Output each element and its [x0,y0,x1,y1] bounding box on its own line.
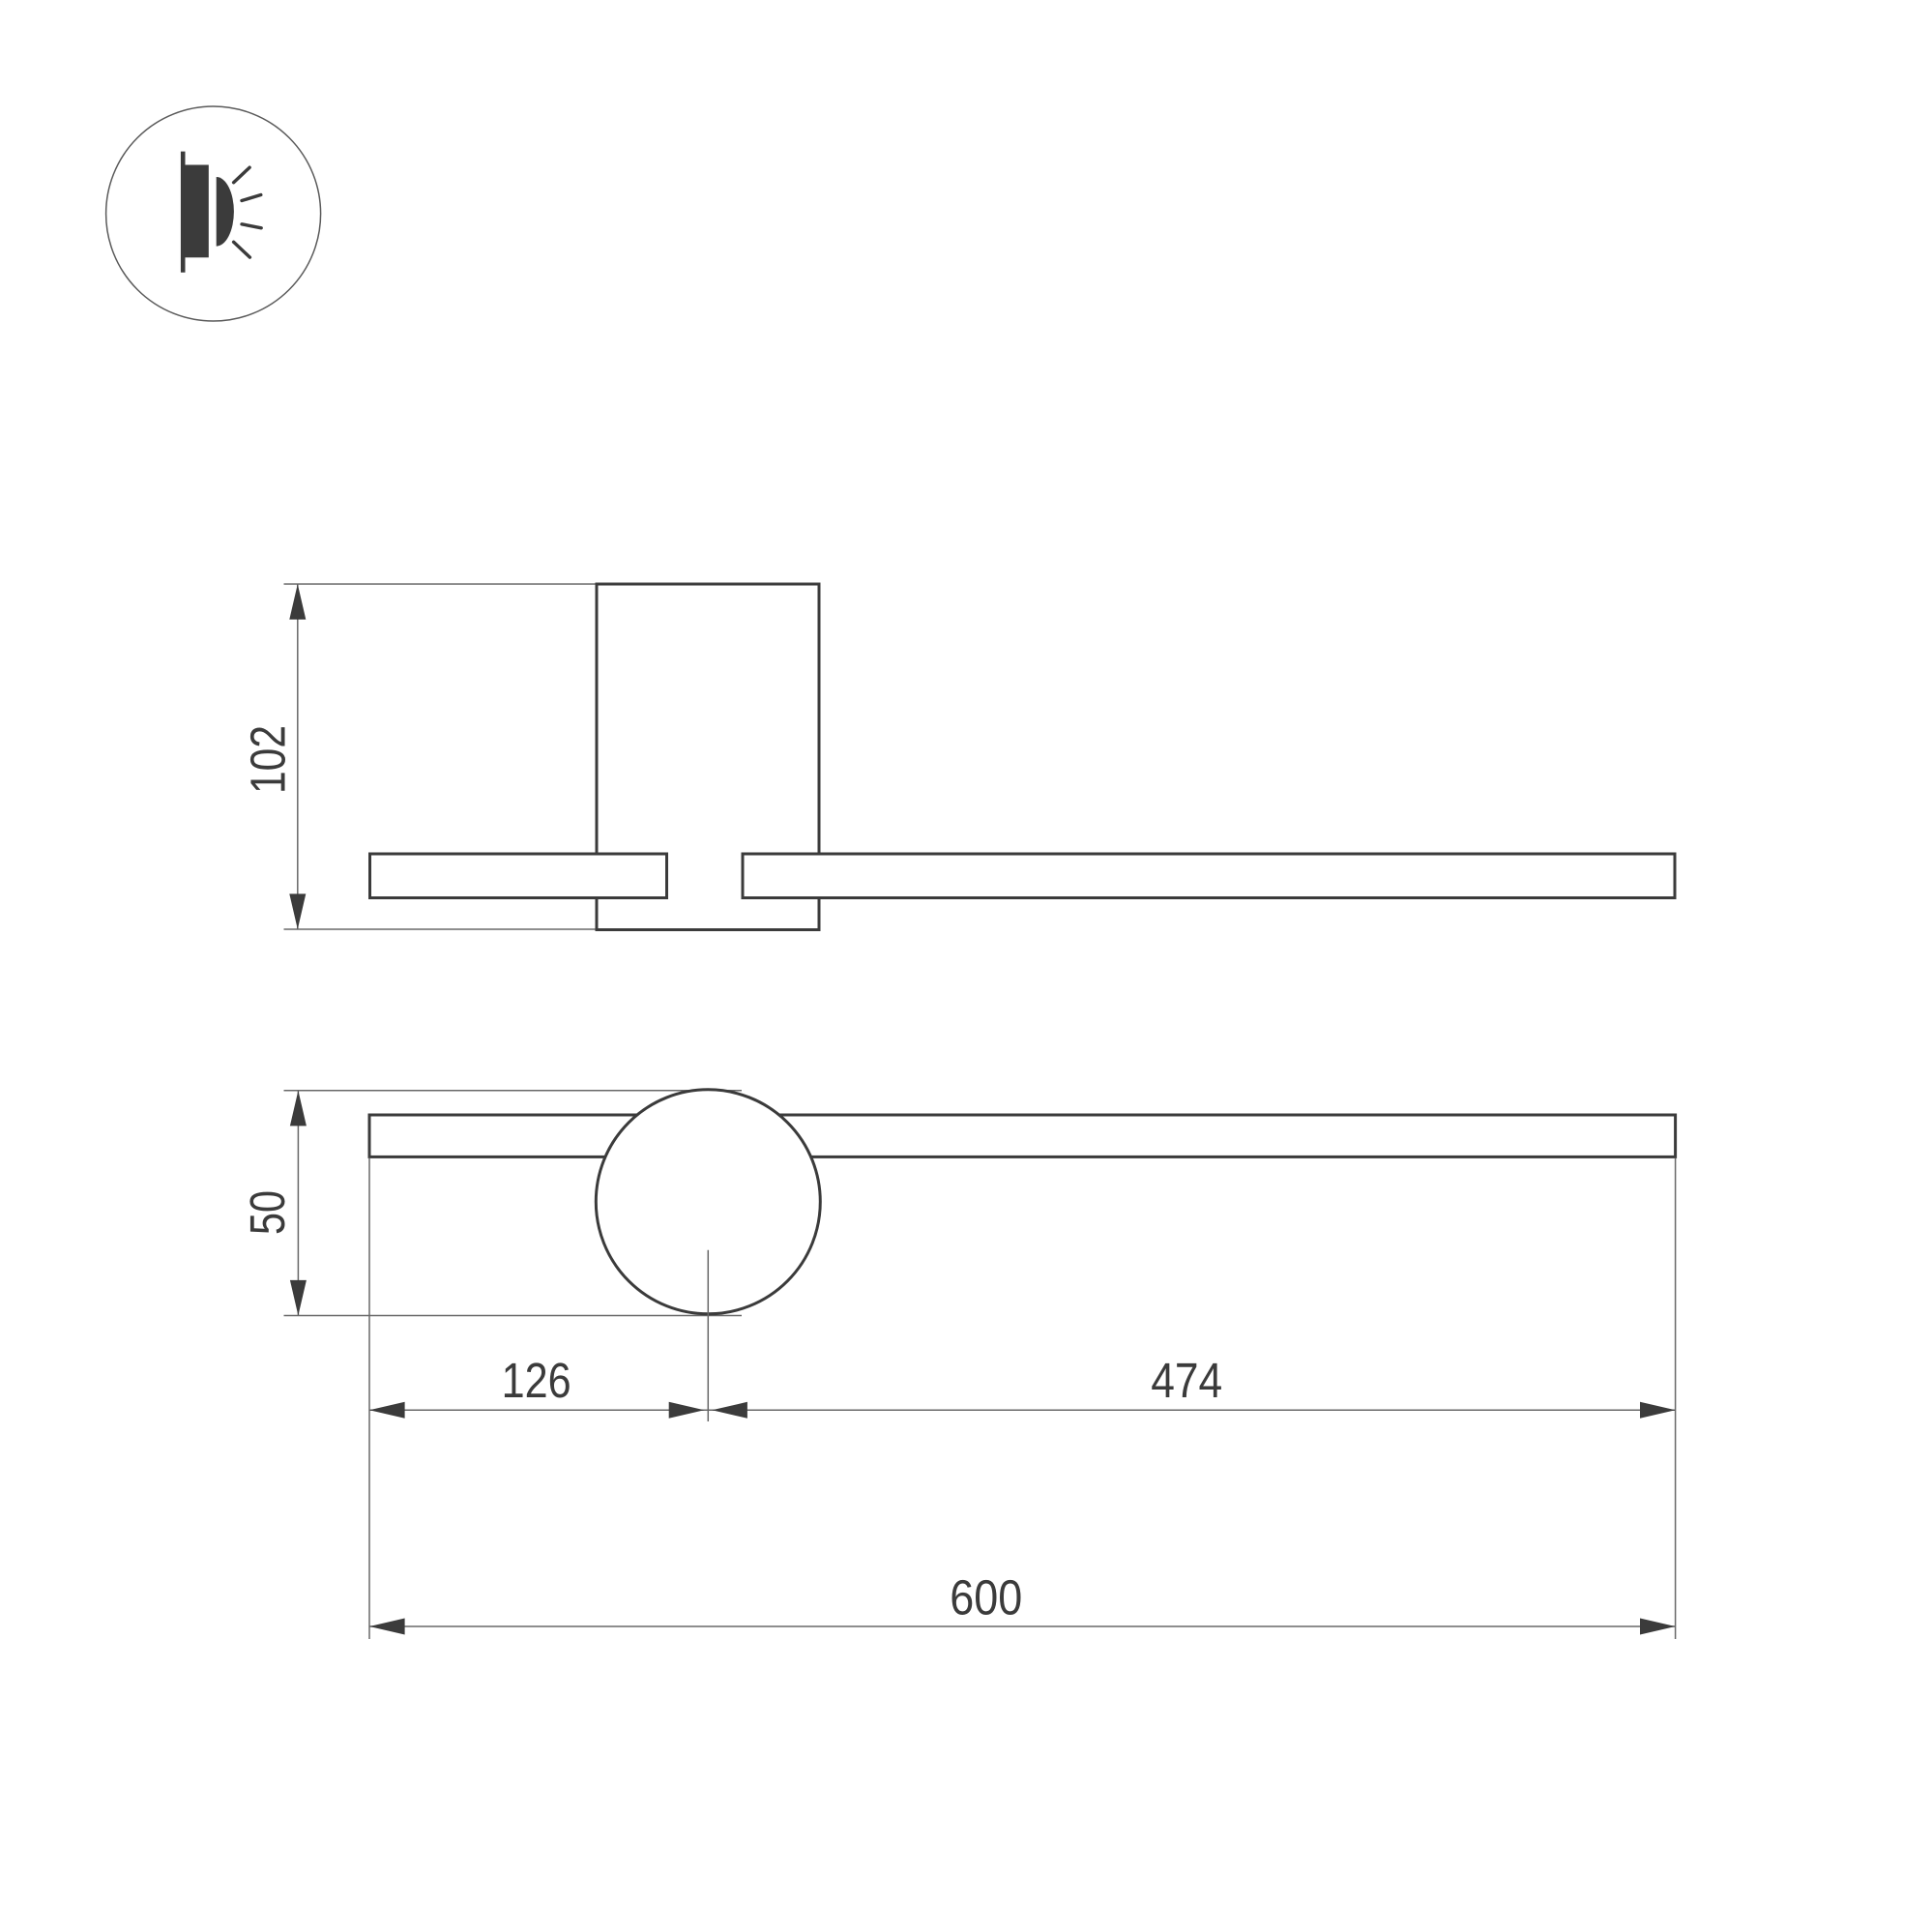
svg-text:102: 102 [241,725,296,794]
svg-text:474: 474 [1151,1353,1222,1408]
svg-text:50: 50 [240,1190,295,1235]
svg-text:600: 600 [950,1570,1022,1625]
svg-text:126: 126 [502,1353,571,1408]
